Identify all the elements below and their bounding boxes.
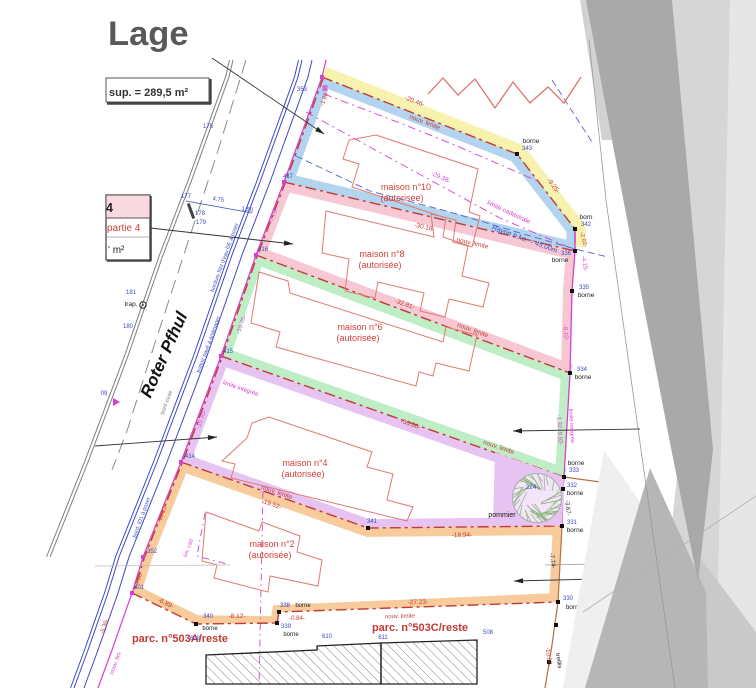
- svg-text:-10.07-: -10.07-: [544, 647, 553, 667]
- svg-text:608: 608: [190, 636, 201, 642]
- svg-text:179: 179: [196, 220, 207, 226]
- svg-text:-1.32+9.92-: -1.32+9.92-: [555, 414, 563, 445]
- svg-text:-3.67-: -3.67-: [563, 500, 570, 516]
- svg-text:-7.74-: -7.74-: [548, 553, 556, 569]
- svg-text:borne: borne: [283, 632, 299, 638]
- svg-text:limite intégrée: limite intégrée: [567, 409, 575, 444]
- svg-text:417: 417: [283, 174, 294, 180]
- svg-text:maison n°4: maison n°4: [282, 458, 327, 468]
- svg-text:limite cadastrale: limite cadastrale: [486, 200, 532, 226]
- svg-text:parc. n°503C/reste: parc. n°503C/reste: [372, 622, 468, 634]
- svg-text:partie 4: partie 4: [107, 223, 141, 234]
- svg-text:333: 333: [569, 468, 580, 474]
- svg-text:lim. cad.: lim. cad.: [183, 537, 196, 559]
- svg-text:borne: borne: [523, 138, 540, 145]
- svg-text:nouv. lim: nouv. lim: [109, 652, 123, 676]
- svg-text:maison n°8: maison n°8: [359, 249, 404, 259]
- svg-text:416: 416: [258, 247, 269, 253]
- svg-text:treillis: treillis: [554, 653, 562, 669]
- svg-text:parc. n°503A/reste: parc. n°503A/reste: [132, 633, 228, 645]
- svg-text:415: 415: [223, 349, 234, 355]
- svg-text:borne: borne: [567, 527, 584, 534]
- svg-text:175: 175: [203, 124, 214, 130]
- svg-text:bordure filet d'eau filE à pos: bordure filet d'eau filE à poser: [210, 222, 241, 293]
- svg-text:180: 180: [123, 324, 134, 330]
- svg-text:(autorisée): (autorisée): [358, 260, 401, 270]
- svg-text:(autorisée): (autorisée): [281, 469, 324, 479]
- svg-text:borne: borne: [295, 603, 311, 609]
- svg-text:342: 342: [581, 222, 592, 228]
- svg-text:4: 4: [106, 201, 113, 215]
- svg-text:trap.: trap.: [124, 301, 137, 308]
- svg-text:(autorisée): (autorisée): [248, 550, 291, 560]
- svg-text:343: 343: [522, 146, 533, 152]
- svg-text:330: 330: [563, 596, 574, 602]
- svg-text:610: 610: [322, 634, 333, 640]
- svg-text:332: 332: [567, 483, 578, 489]
- svg-text:borne: borne: [578, 292, 595, 299]
- svg-text:352: 352: [147, 549, 158, 555]
- svg-text:borne: borne: [575, 374, 592, 381]
- svg-text:maison n°6: maison n°6: [337, 322, 382, 332]
- svg-text:Roter Pfhul: Roter Pfhul: [137, 308, 192, 401]
- svg-text:' m²: ' m²: [108, 245, 125, 256]
- svg-text:339: 339: [281, 624, 292, 630]
- svg-text:401: 401: [134, 585, 145, 591]
- svg-text:born: born: [579, 214, 592, 221]
- svg-text:334: 334: [577, 367, 588, 373]
- svg-text:353: 353: [297, 87, 308, 93]
- svg-text:331: 331: [567, 520, 578, 526]
- svg-text:-5.39-: -5.39-: [100, 618, 111, 635]
- svg-text:414: 414: [185, 454, 196, 460]
- svg-text:-18.94-: -18.94-: [452, 532, 473, 539]
- svg-text:341: 341: [367, 519, 378, 525]
- svg-text:borne: borne: [202, 626, 218, 632]
- svg-text:09: 09: [101, 391, 108, 397]
- svg-text:-27.23-: -27.23-: [408, 599, 429, 607]
- svg-text:178: 178: [195, 211, 206, 217]
- svg-text:maison n°10: maison n°10: [381, 182, 431, 192]
- svg-text:(autorisée): (autorisée): [336, 333, 379, 343]
- svg-text:sup. = 289,5 m²: sup. = 289,5 m²: [109, 87, 189, 99]
- svg-text:borne: borne: [567, 490, 584, 497]
- svg-text:340: 340: [203, 614, 214, 620]
- svg-text:181: 181: [126, 290, 137, 296]
- svg-text:borne: borne: [568, 460, 585, 467]
- svg-text:limite intégrée: limite intégrée: [222, 380, 260, 398]
- svg-text:335: 335: [579, 285, 590, 291]
- svg-text:maison n°2: maison n°2: [249, 539, 294, 549]
- svg-text:4.75: 4.75: [212, 196, 225, 204]
- svg-text:611: 611: [378, 635, 388, 641]
- svg-text:224: 224: [526, 484, 537, 491]
- svg-text:-8.12-: -8.12-: [229, 613, 246, 620]
- svg-text:508: 508: [483, 630, 494, 636]
- svg-text:-0.84-: -0.84-: [289, 616, 305, 622]
- svg-text:1.50: 1.50: [241, 206, 254, 214]
- svg-text:-4.15-: -4.15-: [580, 256, 589, 272]
- svg-text:nouv. limite: nouv. limite: [385, 613, 416, 620]
- svg-text:borne: borne: [552, 257, 569, 264]
- svg-text:(autorisée): (autorisée): [380, 193, 423, 203]
- svg-text:338: 338: [280, 603, 291, 609]
- svg-text:177: 177: [181, 194, 192, 200]
- svg-text:-29.38-: -29.38-: [430, 170, 452, 185]
- svg-text:pommier: pommier: [488, 512, 516, 519]
